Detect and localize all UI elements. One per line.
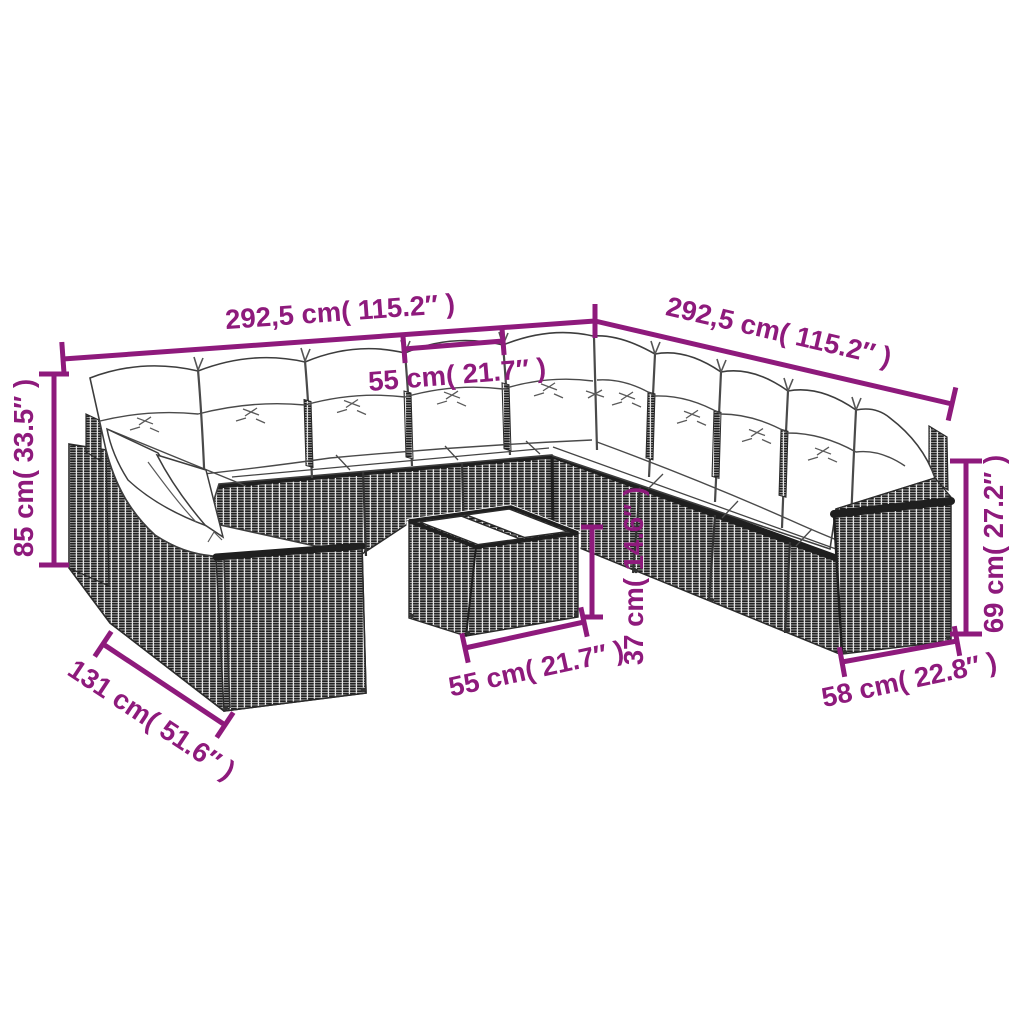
svg-text:37 cm( 14.6″ ): 37 cm( 14.6″ ): [618, 487, 649, 665]
svg-text:69 cm( 27.2″ ): 69 cm( 27.2″ ): [978, 455, 1009, 633]
svg-text:85 cm( 33.5″ ): 85 cm( 33.5″ ): [8, 379, 39, 557]
